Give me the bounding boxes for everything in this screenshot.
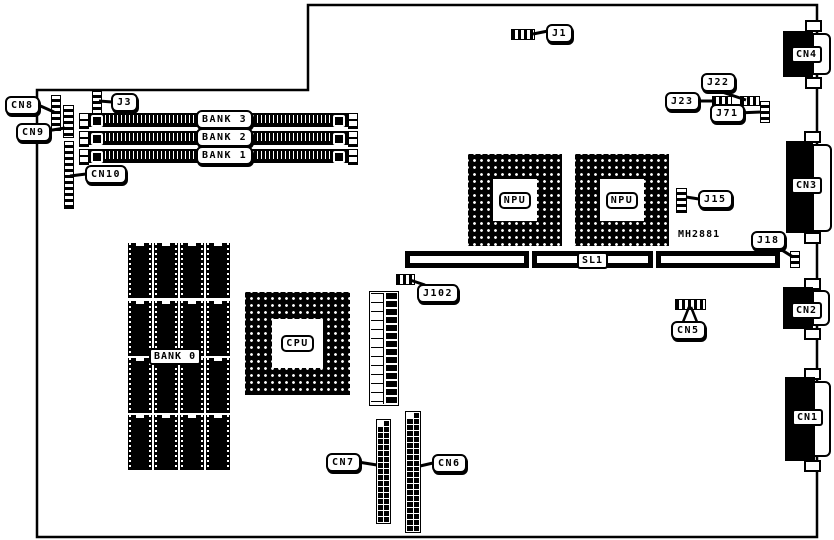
- label-bank0: BANK 0: [149, 348, 201, 365]
- callout-j18: J18: [751, 231, 786, 250]
- label-cn2: CN2: [791, 302, 822, 319]
- motherboard-layout-diagram: BANK 3 BANK 2 BANK 1 BANK 0 CPU NPU NPU …: [0, 0, 834, 540]
- label-cn1: CN1: [792, 409, 823, 426]
- callout-cn8: CN8: [5, 96, 40, 115]
- label-sl1: SL1: [577, 252, 608, 269]
- callout-j22: J22: [701, 73, 736, 92]
- label-bank2: BANK 2: [196, 128, 253, 147]
- callout-j15: J15: [698, 190, 733, 209]
- callout-j71: J71: [710, 104, 745, 123]
- callout-j1: J1: [546, 24, 573, 43]
- label-cn3: CN3: [791, 177, 822, 194]
- callout-cn9: CN9: [16, 123, 51, 142]
- callout-cn6: CN6: [432, 454, 467, 473]
- callout-j3: J3: [111, 93, 138, 112]
- callout-j102: J102: [417, 284, 459, 303]
- label-cn4: CN4: [791, 46, 822, 63]
- label-bank1: BANK 1: [196, 146, 253, 165]
- label-bank3: BANK 3: [196, 110, 253, 129]
- callout-j23: J23: [665, 92, 700, 111]
- callout-cn7: CN7: [326, 453, 361, 472]
- callout-cn5: CN5: [671, 321, 706, 340]
- callout-cn10: CN10: [85, 165, 127, 184]
